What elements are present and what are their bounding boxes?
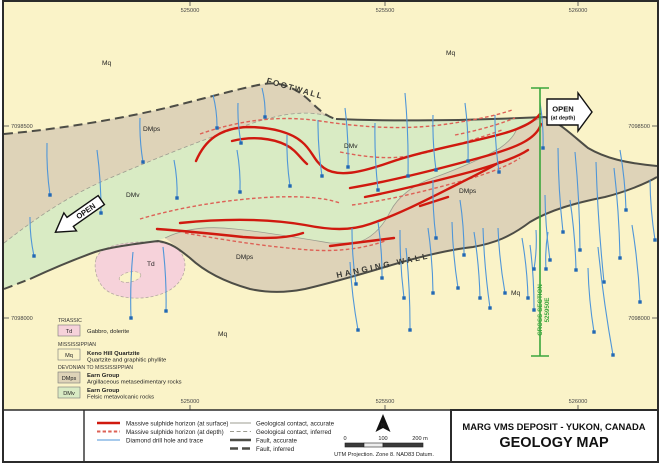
- open-right-sublabel: (at depth): [551, 116, 576, 122]
- drill-collar-dot: [99, 211, 102, 214]
- dmps-desc: Argillaceous metasedimentary rocks: [87, 380, 182, 386]
- drill-collar-dot: [611, 353, 614, 356]
- drill-collar-dot: [380, 276, 383, 279]
- era-triassic: TRIASSIC: [58, 318, 82, 324]
- drill-collar-dot: [346, 165, 349, 168]
- label-dmv-1: DMv: [126, 192, 140, 199]
- drill-collar-dot: [32, 254, 35, 257]
- label-mq-4: Mq: [511, 290, 520, 297]
- open-right-label: OPEN: [552, 105, 574, 114]
- coord-right-2: 7098000: [628, 316, 650, 322]
- mq-name: Keno Hill Quartzite: [87, 351, 140, 357]
- map-area: CROSS-SECTION 525950E FOOTWALL HANGING W…: [3, 1, 658, 410]
- scale-100: 100: [378, 436, 387, 442]
- drill-collar-dot: [263, 115, 266, 118]
- drill-collar-dot: [653, 238, 656, 241]
- label-td: Td: [147, 261, 155, 268]
- label-dmv-2: DMv: [344, 143, 358, 150]
- drill-collar-dot: [175, 196, 178, 199]
- legend-sulphide-depth: Massive sulphide horizon (at depth): [126, 429, 224, 436]
- scalebar-seg1: [345, 443, 364, 447]
- label-dmps-3: DMps: [459, 188, 477, 195]
- scale-200: 200 m: [412, 436, 428, 442]
- coord-bottom-1: 525000: [181, 399, 200, 405]
- drill-collar-dot: [602, 280, 605, 283]
- drill-collar-dot: [548, 258, 551, 261]
- drill-collar-dot: [239, 141, 242, 144]
- drill-collar-dot: [48, 193, 51, 196]
- north-arrow-letter: N: [381, 423, 385, 429]
- drill-collar-dot: [592, 330, 595, 333]
- swatch-mq-code: Mq: [65, 353, 73, 359]
- coord-bottom-2: 525500: [376, 399, 395, 405]
- dmv-desc: Felsic metavolcanic rocks: [87, 395, 154, 401]
- geology-map-svg: CROSS-SECTION 525950E FOOTWALL HANGING W…: [0, 0, 661, 465]
- drill-collar-dot: [624, 208, 627, 211]
- drill-collar-dot: [618, 256, 621, 259]
- drill-collar-dot: [356, 328, 359, 331]
- era-mississippian: MISSISSIPPIAN: [58, 342, 96, 348]
- label-mq-2: Mq: [446, 50, 455, 57]
- cross-section-easting: 525950E: [544, 298, 551, 323]
- legend-fault-accurate: Fault, accurate: [256, 438, 297, 445]
- legend-drill: Diamond drill hole and trace: [126, 438, 204, 445]
- drill-collar-dot: [408, 328, 411, 331]
- drill-collar-dot: [376, 188, 379, 191]
- drill-collar-dot: [532, 308, 535, 311]
- swatch-dmps-code: DMps: [62, 376, 77, 382]
- coord-right-1: 7098500: [628, 124, 650, 130]
- coord-left-1: 7098500: [11, 124, 33, 130]
- drill-collar-dot: [141, 160, 144, 163]
- scalebar-seg3: [383, 443, 423, 447]
- map-title-line1: MARG VMS DEPOSIT - YUKON, CANADA: [462, 421, 645, 432]
- drill-collar-dot: [544, 267, 547, 270]
- drill-collar-dot: [561, 230, 564, 233]
- cross-section-label: CROSS-SECTION: [537, 284, 544, 336]
- drill-collar-dot: [164, 309, 167, 312]
- drill-collar-dot: [466, 159, 469, 162]
- drill-collar-dot: [320, 174, 323, 177]
- drill-collar-dot: [578, 248, 581, 251]
- legend-contact-accurate: Geological contact, accurate: [256, 421, 335, 428]
- coord-top-3: 526000: [569, 8, 588, 14]
- coord-top-2: 525500: [376, 8, 395, 14]
- geology-map-page: CROSS-SECTION 525950E FOOTWALL HANGING W…: [0, 0, 661, 465]
- drill-collar-dot: [354, 282, 357, 285]
- drill-collar-dot: [638, 300, 641, 303]
- drill-collar-dot: [406, 174, 409, 177]
- coord-bottom-3: 526000: [569, 399, 588, 405]
- drill-collar-dot: [129, 316, 132, 319]
- drill-collar-dot: [541, 146, 544, 149]
- drill-collar-dot: [288, 184, 291, 187]
- drill-collar-dot: [456, 286, 459, 289]
- legend-contact-inferred: Geological contact, inferred: [256, 429, 332, 436]
- coord-left-2: 7098000: [11, 316, 33, 322]
- bottom-strip: Massive sulphide horizon (at surface) Ma…: [3, 410, 658, 462]
- swatch-td-code: Td: [66, 329, 73, 335]
- era-devonian: DEVONIAN TO MISSISSIPPIAN: [58, 365, 133, 371]
- label-mq-3: Mq: [218, 331, 227, 338]
- scalebar-seg2: [364, 443, 383, 447]
- drill-collar-dot: [532, 267, 535, 270]
- drill-collar-dot: [402, 296, 405, 299]
- scale-0: 0: [343, 436, 346, 442]
- drill-collar-dot: [238, 190, 241, 193]
- td-desc: Gabbro, dolerite: [87, 329, 130, 335]
- dmv-name: Earn Group: [87, 388, 120, 394]
- drill-collar-dot: [434, 236, 437, 239]
- drill-collar-dot: [488, 306, 491, 309]
- map-title-line2: GEOLOGY MAP: [499, 435, 609, 451]
- title-block: MARG VMS DEPOSIT - YUKON, CANADA GEOLOGY…: [451, 410, 658, 462]
- dmps-name: Earn Group: [87, 373, 120, 379]
- drill-collar-dot: [503, 291, 506, 294]
- drill-collar-dot: [497, 170, 500, 173]
- utm-note: UTM Projection. Zone 8. NAD83 Datum.: [334, 452, 434, 458]
- drill-collar-dot: [574, 268, 577, 271]
- label-dmps-2: DMps: [236, 254, 254, 261]
- mq-desc: Quartzite and graphitic phyllite: [87, 358, 167, 364]
- label-mq-1: Mq: [102, 60, 111, 67]
- drill-collar-dot: [478, 296, 481, 299]
- drill-collar-dot: [462, 253, 465, 256]
- drill-collar-dot: [526, 296, 529, 299]
- drill-collar-dot: [434, 168, 437, 171]
- legend-fault-inferred: Fault, inferred: [256, 446, 295, 453]
- swatch-dmv-code: DMv: [63, 391, 75, 397]
- drill-collar-dot: [215, 126, 218, 129]
- drill-collar-dot: [431, 291, 434, 294]
- coord-top-1: 525000: [181, 8, 200, 14]
- legend-sulphide-surface: Massive sulphide horizon (at surface): [126, 421, 228, 428]
- label-dmps-1: DMps: [143, 126, 161, 133]
